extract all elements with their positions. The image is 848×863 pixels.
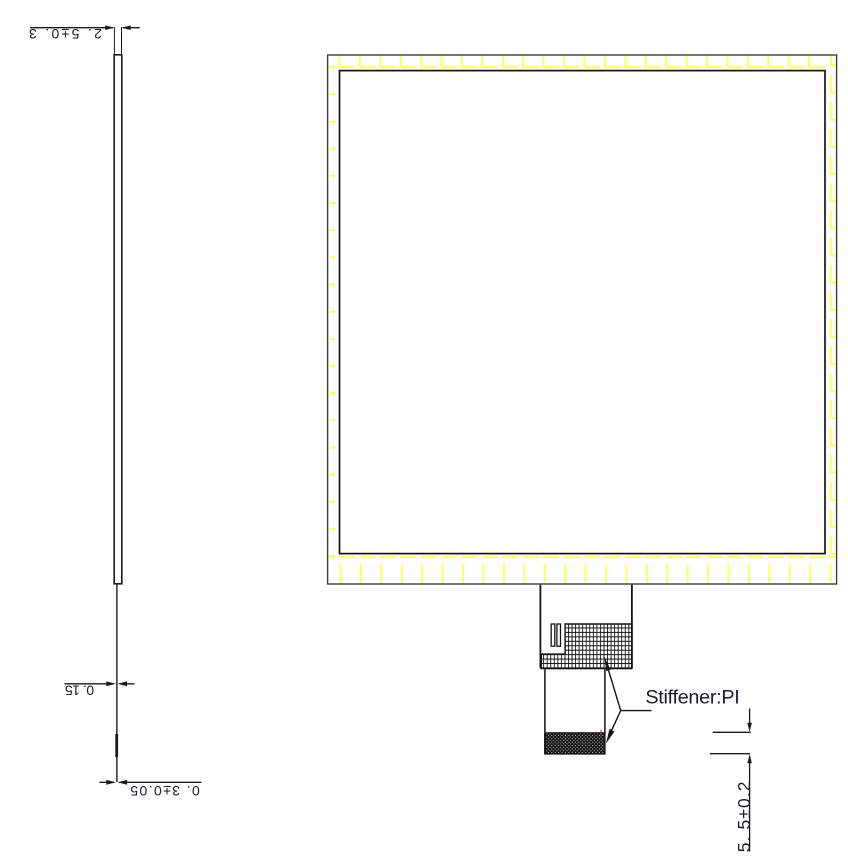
- svg-text:0. 3±0.05: 0. 3±0.05: [129, 783, 200, 799]
- svg-text:0. 15: 0. 15: [65, 683, 94, 699]
- svg-text:2. 5±0. 3: 2. 5±0. 3: [27, 26, 102, 42]
- svg-text:Stiffener:PI: Stiffener:PI: [645, 687, 739, 709]
- svg-text:5. 5±0.2: 5. 5±0.2: [734, 780, 754, 852]
